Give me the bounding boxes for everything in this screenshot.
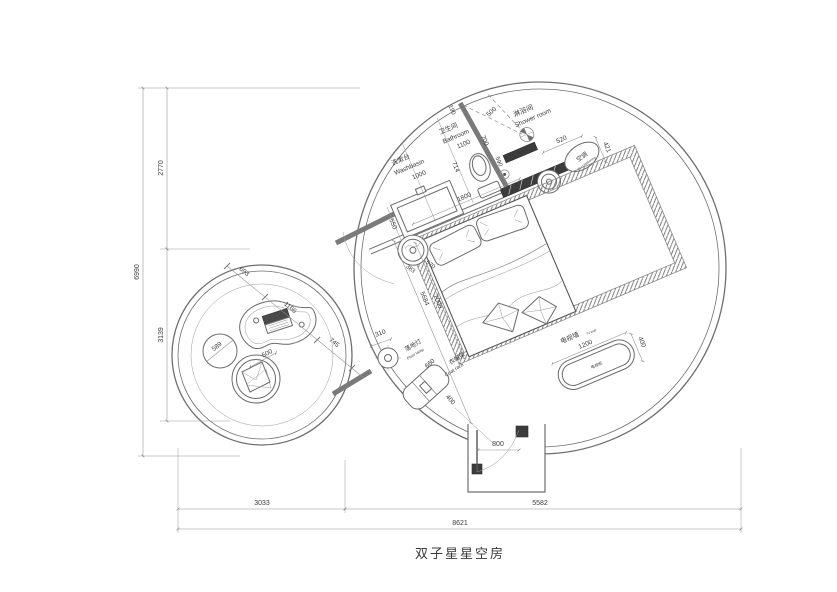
dim-bed-width: 1800: [456, 191, 472, 203]
dim-coat-depth: 400: [444, 394, 457, 407]
bottom-dimensions: 3033 5582 8621: [178, 448, 741, 533]
floor-drain-icon: [518, 125, 536, 143]
floor-plan-drawing: 空调 air-conditioning: [0, 0, 837, 592]
dim-h-right: 5582: [532, 500, 548, 507]
floor-lamp: 310 落地灯 Floor lamp: [371, 328, 425, 371]
junction-door-arc: [343, 232, 394, 284]
dim-lc3: 745: [328, 337, 341, 350]
dim-tv-length: 1200: [578, 339, 594, 351]
floor-cushion: 500: [232, 348, 280, 403]
dim-bathroom-width: 1100: [456, 138, 472, 150]
door-jamb: [516, 426, 528, 437]
dim-shower-head: 520: [555, 134, 568, 145]
tv-wall-label-en: TV wall: [586, 328, 597, 336]
left-room-interior: 589 500 693 1166 745: [203, 263, 364, 403]
kidney-table: [234, 288, 322, 358]
toilet-tank: [477, 181, 501, 199]
dim-h-left: 3033: [254, 500, 270, 507]
entrance: 800: [455, 408, 545, 492]
main-room-interior: 空调 air-conditioning: [330, 45, 714, 443]
dim-h-total: 8621: [452, 520, 468, 527]
shower-head-bar: [503, 142, 537, 163]
pouf: 589: [203, 334, 237, 368]
floor-plan-canvas: 空调 air-conditioning: [0, 0, 837, 592]
dim-tv-depth: 400: [636, 336, 647, 349]
dim-washbasin-length: 1000: [411, 169, 427, 181]
dim-v-total: 6990: [134, 264, 141, 280]
drawing-title: 双子星星空房: [415, 546, 505, 561]
dim-v-lower: 3139: [158, 327, 165, 343]
dim-ac: 421: [601, 141, 612, 154]
dim-v-upper: 2770: [158, 160, 165, 176]
dim-shower-door: 500: [485, 106, 498, 119]
dim-partition: 700: [479, 134, 490, 147]
dim-toilet: 714: [450, 161, 461, 174]
dim-entry: 800: [492, 441, 504, 448]
junction-wall-bottom: [333, 371, 371, 394]
dim-lamp: 310: [374, 328, 387, 338]
tv-wall-label-zh: 电视墙: [559, 329, 581, 345]
dim-stool-a: 383: [404, 264, 416, 275]
